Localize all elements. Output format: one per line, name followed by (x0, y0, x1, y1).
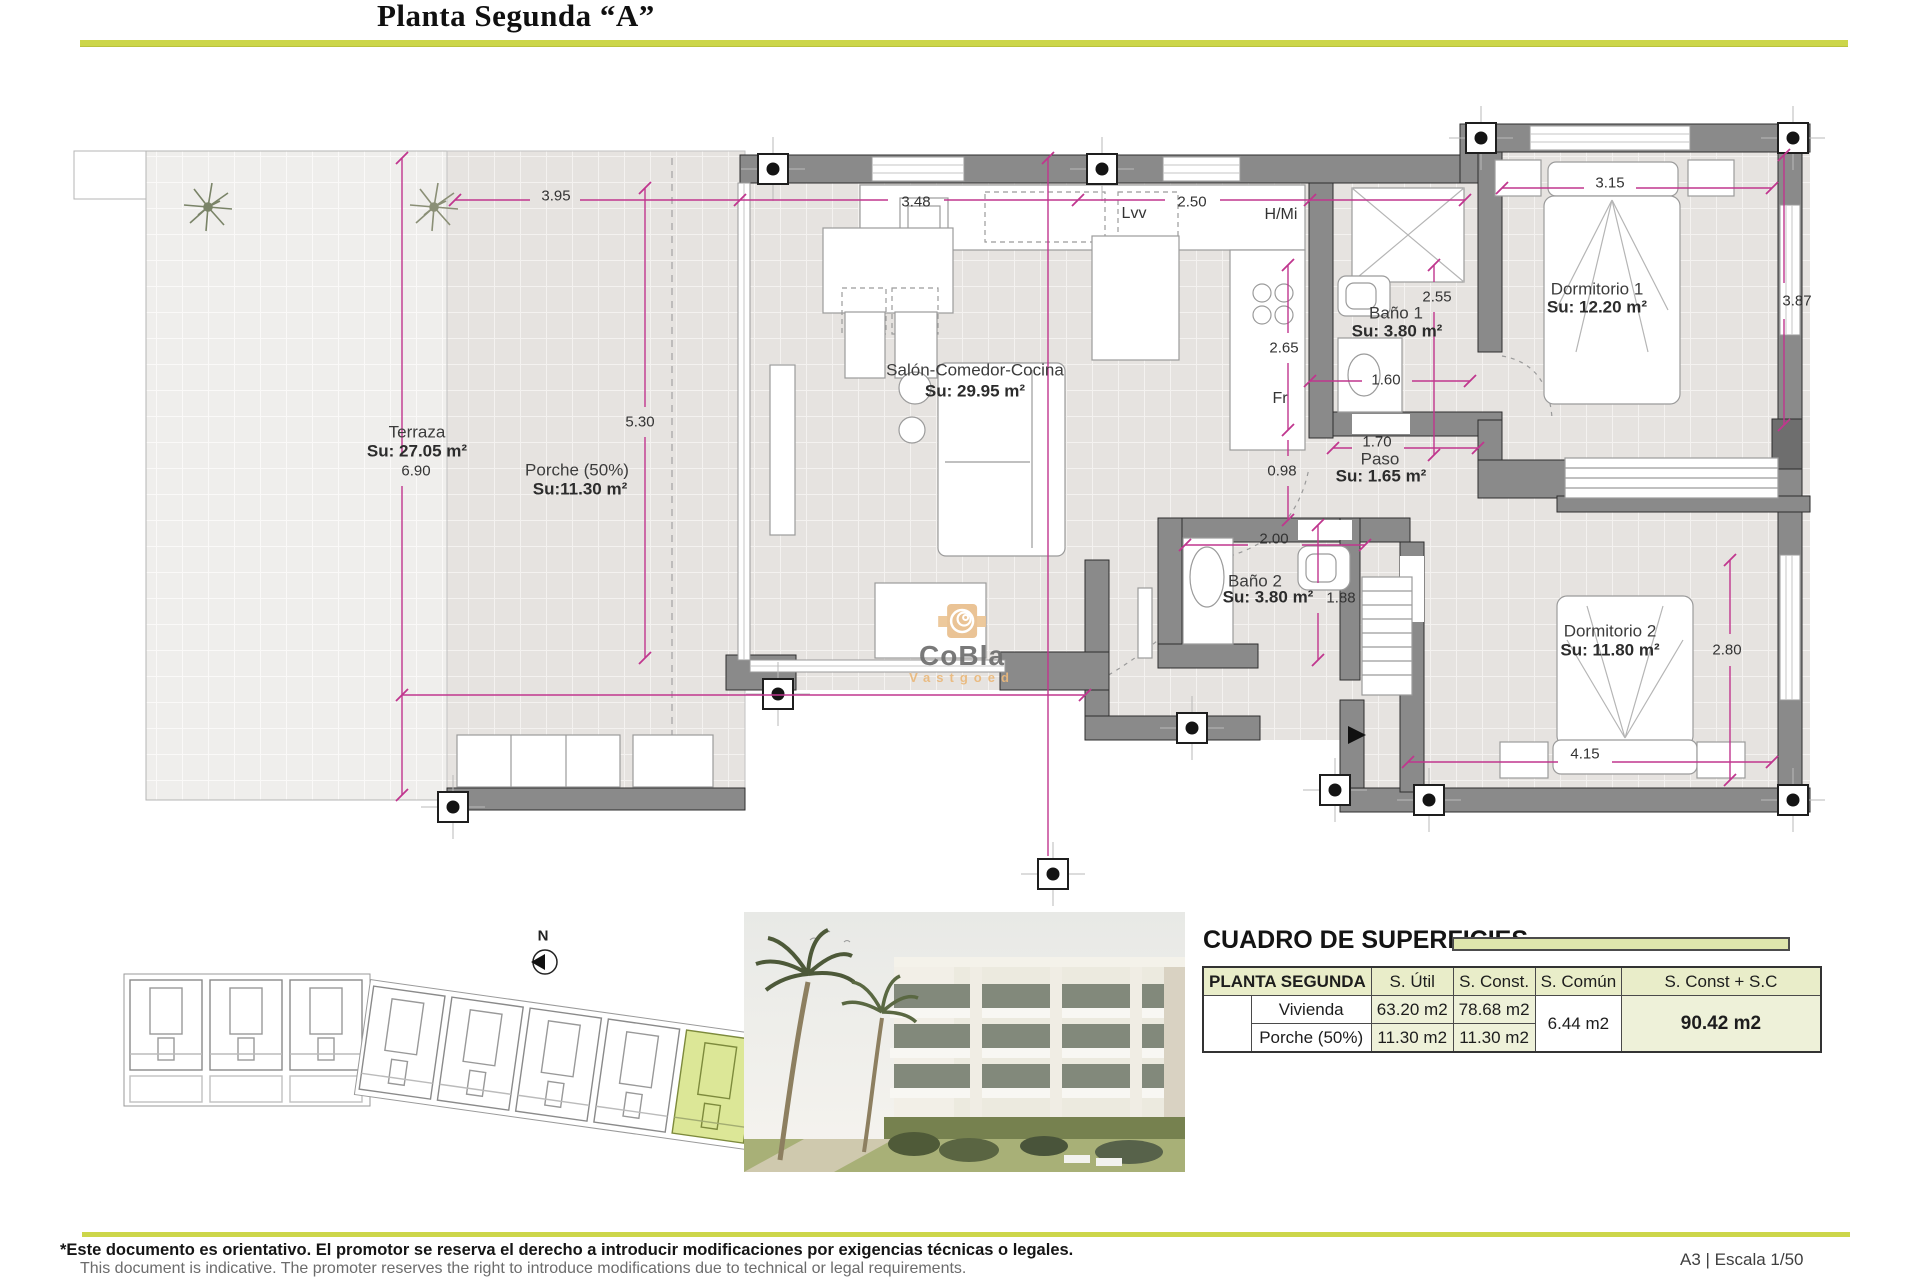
total-value: 90.42 m2 (1622, 996, 1821, 1053)
cobla-logo-icon (938, 604, 986, 638)
dim-0-98: 0.98 (1267, 464, 1296, 479)
vivienda-construida: 78.68 m2 (1453, 996, 1535, 1024)
room-label-dorm1: Dormitorio 1 (1551, 281, 1644, 298)
site-units-left (130, 980, 362, 1102)
appliance-label-fridge: Fr (1272, 391, 1287, 407)
room-area-salon: Su: 29.95 m² (925, 383, 1025, 400)
building-render-image (744, 912, 1185, 1172)
comun-value: 6.44 m2 (1535, 996, 1622, 1053)
floorplan-sheet: Planta Segunda “A” (0, 0, 1920, 1280)
neighbor-notch (74, 151, 146, 199)
sheet-scale: A3 | Escala 1/50 (1680, 1250, 1804, 1270)
col-header-construida: S. Const. (1453, 967, 1535, 996)
appliance-label-oven-microwave: H/Mi (1265, 207, 1298, 223)
dim-1-70: 1.70 (1362, 435, 1391, 450)
dim-3-87: 3.87 (1782, 294, 1811, 309)
surface-table: PLANTA SEGUNDA S. Útil S. Const. S. Comú… (1202, 966, 1822, 1053)
disclaimer-es: *Este documento es orientativo. El promo… (60, 1241, 1073, 1260)
room-area-paso: Su: 1.65 m² (1336, 468, 1427, 485)
room-area-bano1: Su: 3.80 m² (1352, 323, 1443, 340)
room-area-dorm2: Su: 11.80 m² (1560, 642, 1659, 659)
dim-3-95: 3.95 (541, 189, 570, 204)
room-area-bano2: Su: 3.80 m² (1223, 589, 1314, 606)
table-row: Vivienda 63.20 m2 78.68 m2 6.44 m2 90.42… (1203, 996, 1821, 1024)
vivienda-util: 63.20 m2 (1371, 996, 1453, 1024)
col-header-planta: PLANTA SEGUNDA (1203, 967, 1371, 996)
dim-1-88: 1.88 (1326, 591, 1355, 606)
dim-6-90: 6.90 (401, 464, 430, 479)
row-label-porche: Porche (50%) (1251, 1024, 1371, 1053)
heading-accent-bar (1452, 937, 1790, 951)
dim-4-15: 4.15 (1570, 747, 1599, 762)
col-header-total: S. Const + S.C (1622, 967, 1821, 996)
site-units-right (354, 980, 768, 1151)
room-label-salon: Salón-Comedor-Cocina (886, 362, 1064, 379)
dim-2-65: 2.65 (1269, 341, 1298, 356)
room-area-porche: Su:11.30 m² (533, 481, 628, 498)
room-label-paso: Paso (1361, 451, 1400, 468)
cobla-sub-text: Vastgoed (909, 670, 1015, 685)
dim-2-55: 2.55 (1422, 290, 1451, 305)
room-label-dorm2: Dormitorio 2 (1564, 623, 1657, 640)
dim-5-30: 5.30 (625, 415, 654, 430)
dim-3-15: 3.15 (1595, 176, 1624, 191)
dim-2-80: 2.80 (1712, 643, 1741, 658)
dim-2-00: 2.00 (1259, 532, 1288, 547)
appliance-label-dishwasher: Lvv (1122, 206, 1147, 222)
room-area-terraza: Su: 27.05 m² (367, 443, 467, 460)
footer-rule (82, 1232, 1850, 1237)
room-label-terraza: Terraza (389, 424, 446, 441)
cobla-logo: CoBla Vastgoed (909, 604, 1015, 685)
dim-1-60: 1.60 (1371, 373, 1400, 388)
disclaimer-en: This document is indicative. The promote… (80, 1260, 966, 1278)
col-header-comun: S. Común (1535, 967, 1622, 996)
dim-2-50: 2.50 (1177, 195, 1206, 210)
room-area-dorm1: Su: 12.20 m² (1547, 299, 1647, 316)
site-plan (110, 920, 770, 1190)
cobla-brand-text: CoBla (909, 640, 1015, 672)
porche-util: 11.30 m2 (1371, 1024, 1453, 1053)
col-header-util: S. Útil (1371, 967, 1453, 996)
room-label-porche: Porche (50%) (525, 462, 629, 479)
porche-construida: 11.30 m2 (1453, 1024, 1535, 1053)
room-label-bano1: Baño 1 (1369, 305, 1423, 322)
dim-3-48: 3.48 (901, 195, 930, 210)
row-label-vivienda: Vivienda (1251, 996, 1371, 1024)
empty-cell (1203, 996, 1251, 1053)
floorplan-drawing (0, 0, 1920, 960)
